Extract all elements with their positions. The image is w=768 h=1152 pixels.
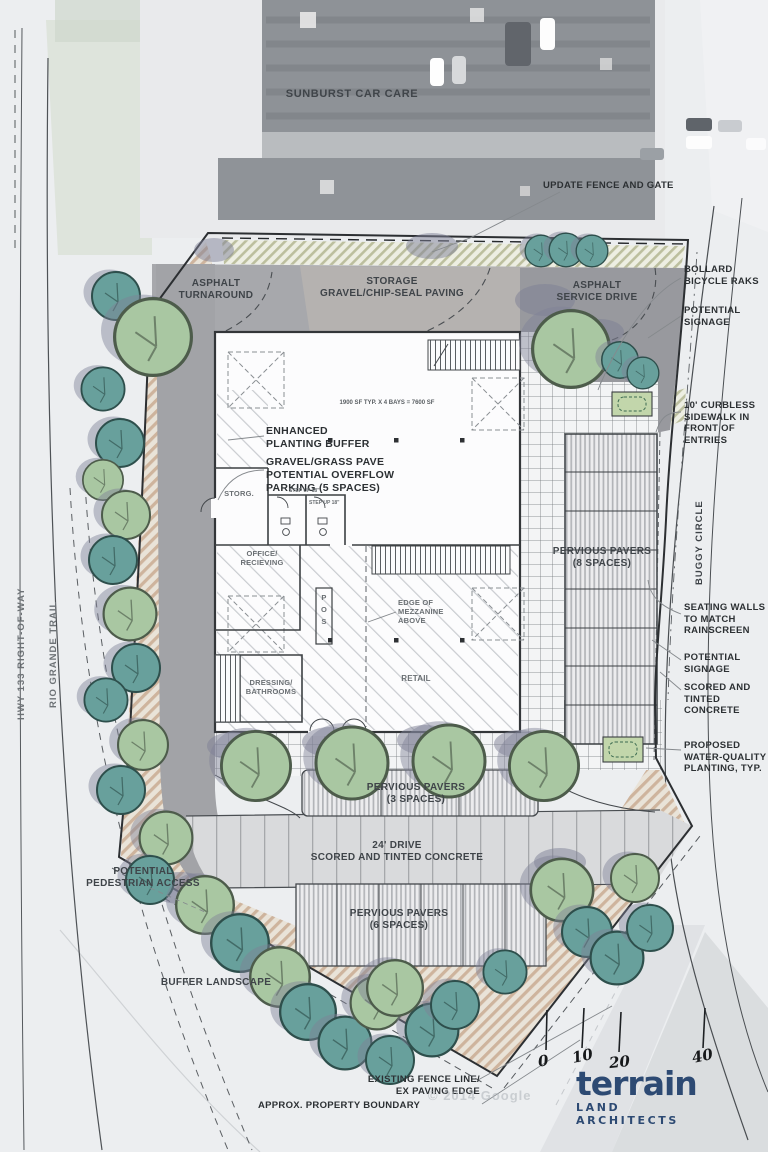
label-pervious-pavers-3: PERVIOUS PAVERS (3 SPACES): [336, 782, 496, 806]
callout-curbless-sidewalk: 10' CURBLESS SIDEWALK IN FRONT OF ENTRIE…: [684, 400, 768, 446]
logo-wordmark: terrain: [576, 1070, 726, 1098]
label-pervious-pavers-6: PERVIOUS PAVERS (6 SPACES): [319, 908, 479, 932]
callout-enhanced-buffer: ENHANCED PLANTING BUFFER: [266, 425, 396, 451]
label-mezzanine-edge: EDGE OF MEZZANINE ABOVE: [398, 598, 468, 625]
callout-update-fence: UPDATE FENCE AND GATE: [543, 180, 674, 192]
building-footprint: [201, 332, 524, 736]
label-buffer-landscape: BUFFER LANDSCAPE: [136, 977, 296, 989]
site-plan-sheet: .green{--tf:#a9c7a2;--ts:#4d5c4b} .teal{…: [0, 0, 768, 1152]
label-buggy-circle: BUGGY CIRCLE: [694, 470, 706, 585]
label-office-receiving: OFFICE/ RECIEVING: [222, 549, 302, 567]
north-stair: [428, 340, 520, 370]
terrain-logo: terrain LAND ARCHITECTS: [576, 1070, 726, 1127]
label-retail: RETAIL: [376, 674, 456, 684]
label-rio-grande-trail: RIO GRANDE TRAIL: [48, 558, 60, 708]
mezzanine-stair: [372, 546, 510, 574]
google-credit: © 2014 Google: [428, 1088, 532, 1103]
label-storage-paving: STORAGE GRAVEL/CHIP-SEAL PAVING: [292, 276, 492, 300]
label-storage-room: STORG.: [214, 489, 264, 498]
label-24-drive: 24' DRIVE SCORED AND TINTED CONCRETE: [277, 840, 517, 864]
label-asphalt-service-drive: ASPHALT SERVICE DRIVE: [537, 280, 657, 304]
pervious-pavers-8: [565, 434, 657, 744]
logo-tagline: LAND ARCHITECTS: [576, 1101, 726, 1127]
callout-bollard-racks: BOLLARD BICYCLE RAKS: [684, 264, 768, 287]
label-hwy-133: HWY 133 RIGHT-OF-WAY: [16, 540, 28, 720]
callout-seating-walls: SEATING WALLS TO MATCH RAINSCREEN: [684, 602, 768, 637]
callout-water-quality: PROPOSED WATER-QUALITY PLANTING, TYP.: [684, 740, 768, 775]
label-sunburst-car-care: SUNBURST CAR CARE: [250, 88, 454, 101]
callout-potential-signage-lower: POTENTIAL SIGNAGE: [684, 652, 768, 675]
callout-property-boundary: APPROX. PROPERTY BOUNDARY: [258, 1100, 420, 1112]
label-dressing-bathrooms: DRESSING/ BATHROOMS: [231, 678, 311, 696]
callout-potential-signage-upper: POTENTIAL SIGNAGE: [684, 305, 768, 328]
label-pos: P O S: [315, 592, 333, 628]
note-step-up-left: STEP UP 18": [289, 488, 320, 494]
callout-scored-tinted: SCORED AND TINTED CONCRETE: [684, 682, 768, 717]
label-pervious-pavers-8: PERVIOUS PAVERS (8 SPACES): [541, 546, 663, 570]
note-step-up-right: STEP UP 18": [309, 500, 340, 506]
note-building-area: 1900 SF TYP. X 4 BAYS = 7600 SF: [325, 400, 449, 407]
label-asphalt-turnaround: ASPHALT TURNAROUND: [146, 278, 286, 302]
site-plan-drawing: .green{--tf:#a9c7a2;--ts:#4d5c4b} .teal{…: [0, 0, 768, 1152]
label-pedestrian-access: POTENTIAL PEDESTRIAN ACCESS: [73, 866, 213, 890]
